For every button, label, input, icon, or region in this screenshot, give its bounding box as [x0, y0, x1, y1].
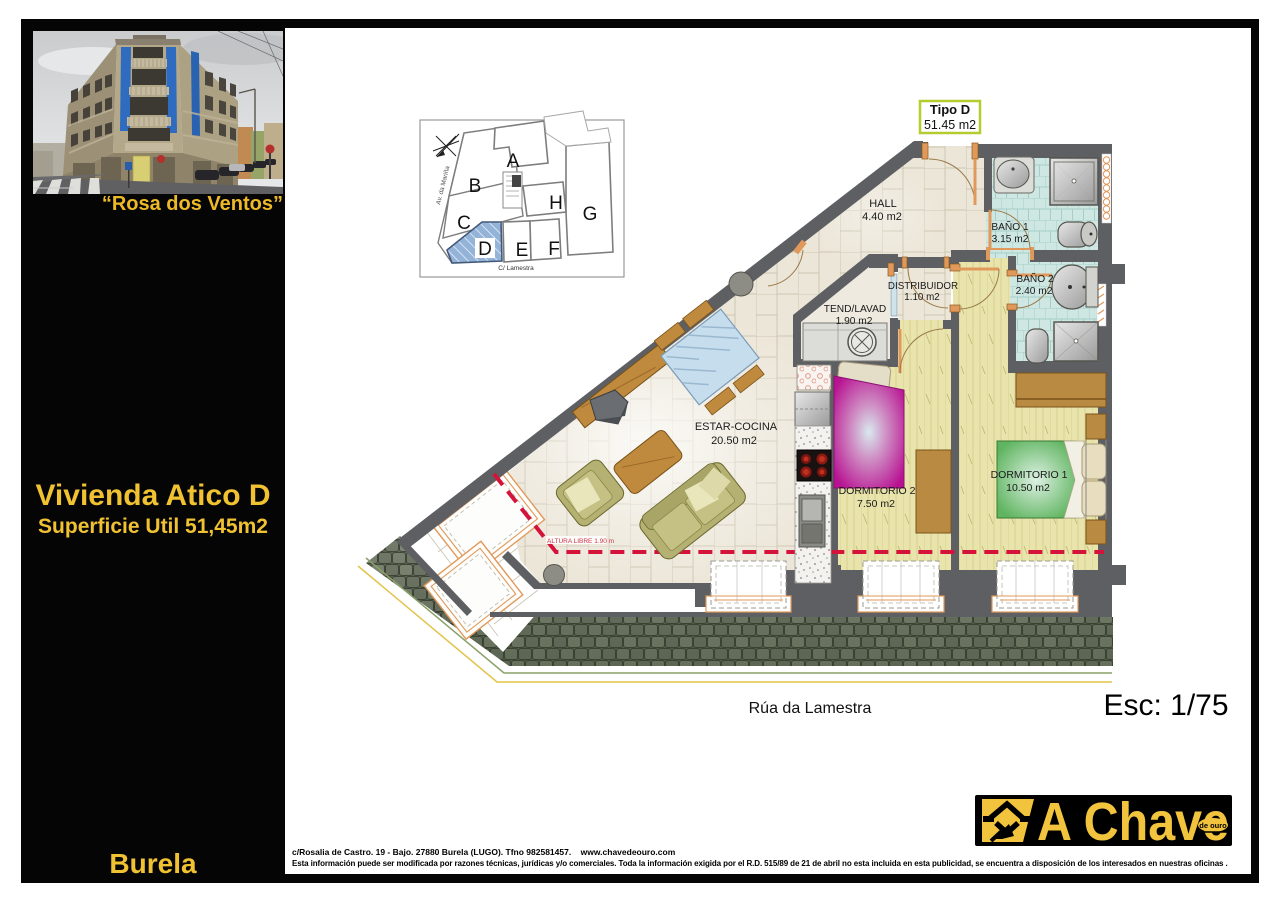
svg-text:ALTURA LIBRE 1.90 m: ALTURA LIBRE 1.90 m: [547, 538, 614, 545]
svg-text:TEND/LAVAD: TEND/LAVAD: [824, 304, 886, 315]
svg-text:G: G: [583, 204, 598, 225]
svg-text:DISTRIBUIDOR: DISTRIBUIDOR: [888, 281, 958, 292]
svg-text:BAÑO 2: BAÑO 2: [1016, 272, 1054, 285]
svg-text:C/ Lamestra: C/ Lamestra: [498, 265, 534, 272]
svg-text:51.45 m2: 51.45 m2: [924, 118, 976, 132]
svg-text:3.15 m2: 3.15 m2: [992, 234, 1029, 245]
svg-text:BAÑO 1: BAÑO 1: [991, 220, 1029, 233]
svg-text:B: B: [469, 176, 482, 197]
svg-text:C: C: [457, 213, 471, 234]
svg-text:1.10 m2: 1.10 m2: [904, 292, 939, 303]
svg-text:10.50 m2: 10.50 m2: [1006, 482, 1050, 494]
svg-text:2.40 m2: 2.40 m2: [1016, 286, 1053, 297]
svg-text:20.50 m2: 20.50 m2: [711, 435, 757, 447]
svg-text:7.50 m2: 7.50 m2: [857, 498, 895, 510]
svg-text:4.40 m2: 4.40 m2: [862, 211, 902, 223]
svg-text:DORMITORIO 2: DORMITORIO 2: [839, 485, 916, 497]
svg-text:DORMITORIO 1: DORMITORIO 1: [991, 469, 1068, 481]
svg-text:Tipo D: Tipo D: [930, 102, 970, 117]
svg-text:ESTAR-COCINA: ESTAR-COCINA: [695, 421, 778, 433]
svg-text:F: F: [548, 239, 560, 260]
svg-text:E: E: [516, 240, 529, 261]
svg-text:A: A: [507, 151, 520, 172]
svg-text:de ouro: de ouro: [1199, 821, 1227, 830]
svg-text:HALL: HALL: [869, 198, 897, 210]
svg-text:1.90 m2: 1.90 m2: [836, 316, 873, 327]
svg-text:D: D: [478, 239, 492, 260]
svg-text:H: H: [549, 193, 563, 214]
